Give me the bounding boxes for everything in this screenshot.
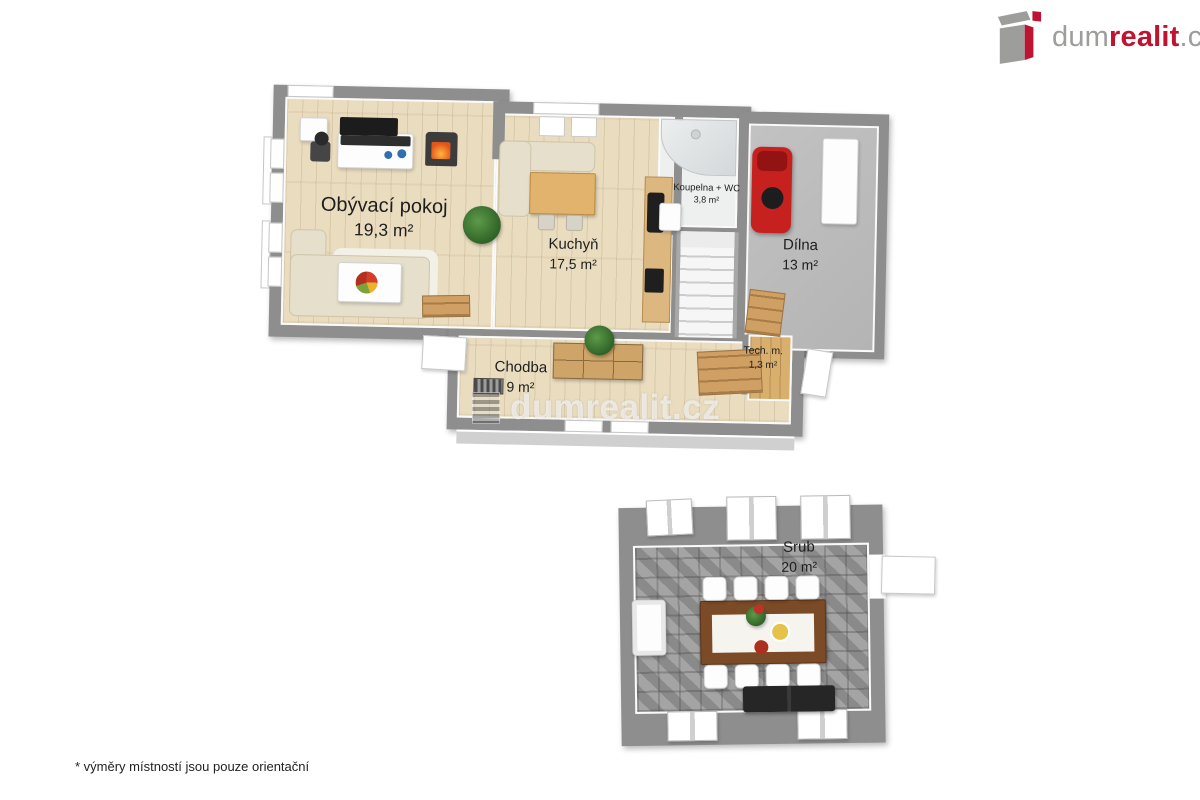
armchair — [632, 600, 667, 656]
window-pane — [539, 116, 565, 137]
logo-text-cz: .cz — [1180, 21, 1200, 53]
door-leaf — [881, 556, 936, 595]
room-name: Koupelna + WC — [673, 182, 740, 196]
chair — [733, 576, 757, 600]
room-name: Chodba — [494, 357, 547, 378]
window — [533, 102, 599, 115]
chair — [797, 663, 821, 687]
cooktop — [644, 268, 663, 292]
room-label-tech-m: Tech. m. 1,3 m² — [743, 344, 783, 371]
floorplan-page: dumrealit.cz — [0, 0, 1200, 800]
flower — [754, 604, 764, 614]
kitchen-bench — [498, 140, 532, 217]
chair — [538, 214, 555, 230]
room-area: 9 m² — [494, 377, 547, 396]
room-label-dilna: Dílna 13 m² — [782, 235, 819, 273]
dining-table — [529, 172, 596, 215]
dumrealit-logo: dumrealit.cz — [995, 10, 1200, 64]
plate — [770, 622, 790, 642]
room-label-chodba: Chodba 9 m² — [494, 357, 547, 396]
window — [270, 139, 285, 169]
chair — [795, 575, 819, 599]
room-name: Obývací pokoj — [321, 192, 448, 221]
chair — [702, 577, 726, 601]
wood-bench — [422, 295, 470, 318]
room-area: 3,8 m² — [673, 194, 740, 207]
fireplace-fire — [431, 142, 450, 159]
window — [268, 222, 283, 252]
chair — [764, 576, 788, 600]
room-label-kuchyn: Kuchyň 17,5 m² — [548, 234, 599, 273]
room-area: 20 m² — [781, 557, 817, 576]
riding-mower-hood — [757, 151, 787, 172]
logo-text-dum: dum — [1052, 21, 1109, 53]
audio-deck — [340, 135, 410, 146]
room-name: Kuchyň — [548, 234, 598, 255]
room-label-obyvaci-pokoj: Obývací pokoj 19,3 m² — [320, 192, 448, 243]
dumrealit-logo-icon — [995, 10, 1043, 64]
logo-wordmark: dumrealit.cz — [1052, 21, 1200, 54]
chair — [566, 215, 583, 231]
window — [268, 256, 283, 286]
chair — [766, 664, 790, 688]
door-opening — [611, 421, 649, 434]
window-pane — [571, 117, 597, 138]
window — [269, 173, 284, 203]
window — [726, 496, 777, 541]
room-name: Srub — [781, 537, 817, 557]
room-area: 19,3 m² — [320, 218, 447, 243]
room-area: 17,5 m² — [548, 254, 598, 273]
footnote: * výměry místností jsou pouze orientační — [75, 759, 309, 774]
door-opening — [565, 420, 603, 433]
room-label-koupelna-wc: Koupelna + WC 3,8 m² — [673, 182, 740, 207]
window — [646, 498, 694, 536]
workbench — [821, 138, 859, 225]
chair — [704, 665, 728, 689]
room-area: 13 m² — [782, 255, 818, 274]
window — [667, 711, 717, 742]
room-label-srub: Srub 20 m² — [781, 537, 817, 575]
window — [797, 709, 847, 740]
room-name: Tech. m. — [743, 344, 783, 358]
door-leaf — [421, 335, 467, 371]
bowl — [754, 640, 768, 654]
tv — [340, 117, 398, 136]
stair-landing — [680, 231, 734, 248]
floorplan-main-floor: Obývací pokoj 19,3 m² Kuchyň 17,5 m² Kou… — [264, 77, 894, 456]
window — [287, 85, 333, 98]
logo-text-realit: realit — [1109, 21, 1180, 53]
wood-bench — [744, 289, 785, 337]
window — [800, 495, 851, 540]
sofa — [743, 685, 835, 712]
washbasin — [659, 203, 682, 231]
room-area: 1,3 m² — [743, 358, 783, 372]
room-name: Dílna — [782, 235, 818, 255]
chair — [735, 664, 759, 688]
floorplan-srub: Srub 20 m² — [616, 492, 932, 752]
